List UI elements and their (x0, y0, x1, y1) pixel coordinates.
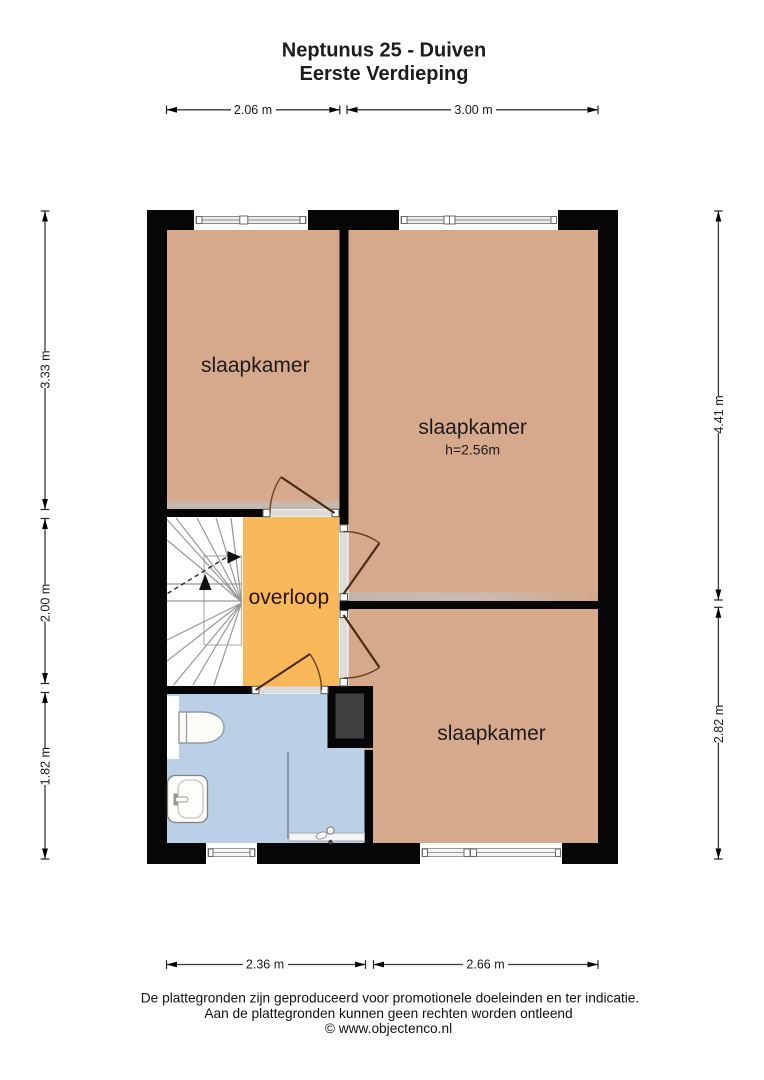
svg-text:De plattegronden zijn geproduc: De plattegronden zijn geproduceerd voor … (141, 991, 639, 1006)
svg-text:3.33 m: 3.33 m (39, 350, 53, 388)
svg-text:h=2.56m: h=2.56m (445, 442, 500, 458)
svg-text:4.41 m: 4.41 m (712, 395, 726, 433)
svg-text:1.82 m: 1.82 m (39, 747, 53, 785)
svg-text:2.36 m: 2.36 m (246, 958, 284, 972)
svg-text:slaapkamer: slaapkamer (201, 354, 310, 377)
svg-text:2.06 m: 2.06 m (234, 103, 272, 117)
svg-text:2.66 m: 2.66 m (466, 958, 504, 972)
svg-text:2.00 m: 2.00 m (39, 584, 53, 622)
svg-text:3.00 m: 3.00 m (454, 103, 492, 117)
svg-text:2.82 m: 2.82 m (712, 705, 726, 743)
svg-text:Aan de plattegronden kunnen ge: Aan de plattegronden kunnen geen rechten… (204, 1006, 572, 1021)
svg-text:Eerste Verdieping: Eerste Verdieping (300, 63, 469, 85)
svg-text:slaapkamer: slaapkamer (437, 722, 546, 745)
svg-text:overloop: overloop (249, 586, 330, 609)
svg-text:Neptunus 25 - Duiven: Neptunus 25 - Duiven (282, 40, 486, 62)
svg-text:slaapkamer: slaapkamer (418, 416, 527, 439)
svg-text:© www.objectenco.nl: © www.objectenco.nl (325, 1021, 452, 1036)
